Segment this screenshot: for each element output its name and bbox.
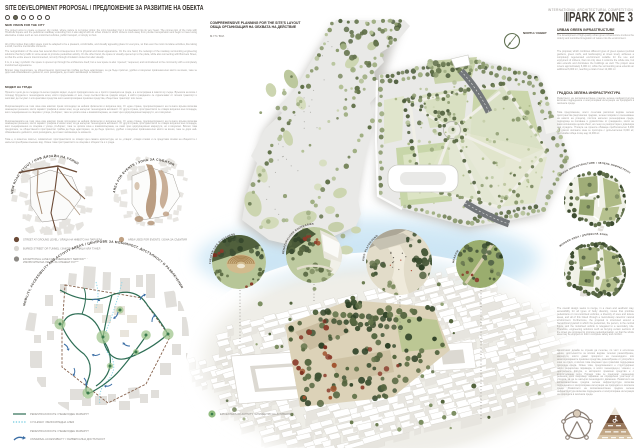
svg-text:PARK ZONE 3: PARK ZONE 3	[569, 10, 633, 25]
